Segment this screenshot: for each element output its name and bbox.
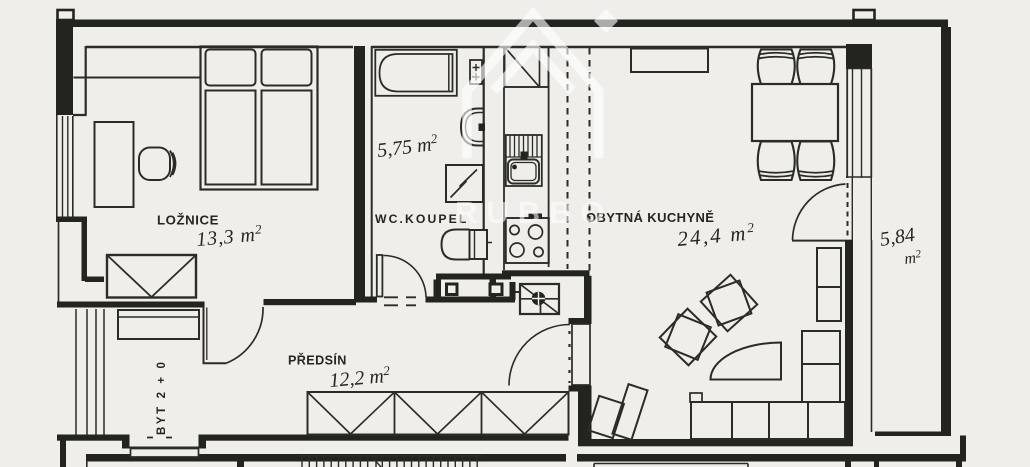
svg-text:RUBBO: RUBBO: [455, 195, 614, 230]
svg-text:LOŽNICE: LOŽNICE: [157, 213, 219, 228]
svg-text:PŘEDSÍN: PŘEDSÍN: [288, 353, 347, 368]
svg-text:BYT 2 + 0: BYT 2 + 0: [156, 360, 168, 436]
